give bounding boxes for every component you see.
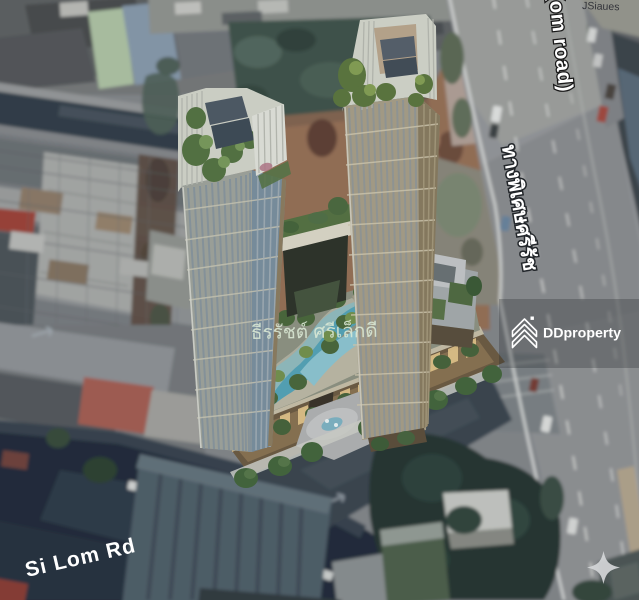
svg-text:DDproperty: DDproperty bbox=[543, 326, 621, 342]
svg-text:JSiaues: JSiaues bbox=[582, 0, 620, 13]
svg-text:ธีรรัชต์ ศรีเล็กดี: ธีรรัชต์ ศรีเล็กดี bbox=[251, 318, 378, 344]
